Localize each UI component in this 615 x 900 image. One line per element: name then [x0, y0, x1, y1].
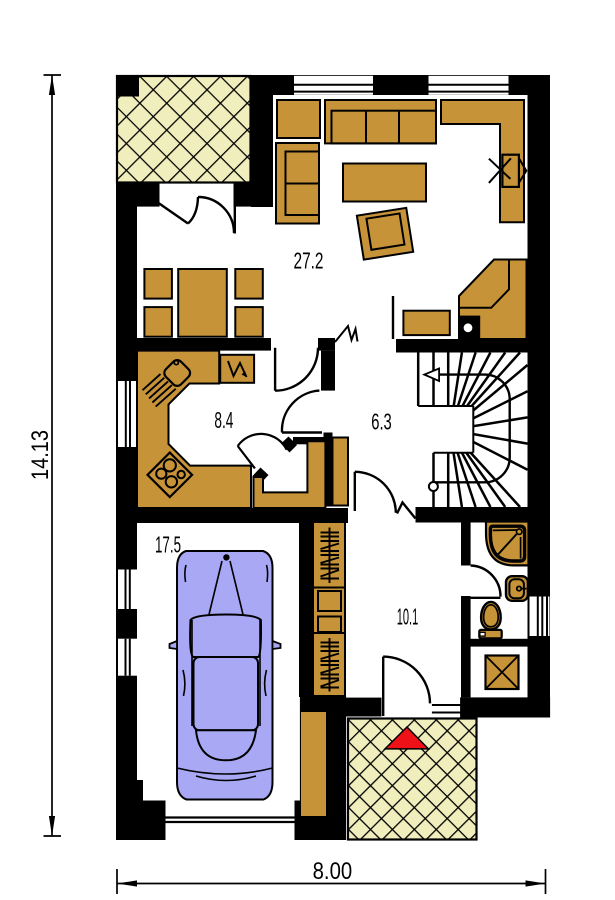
svg-text:8.4: 8.4: [214, 407, 233, 433]
svg-text:17.5: 17.5: [155, 531, 181, 557]
svg-text:27.2: 27.2: [294, 248, 324, 274]
svg-text:10.1: 10.1: [397, 604, 419, 630]
svg-text:8.00: 8.00: [313, 858, 353, 885]
svg-text:6.3: 6.3: [371, 408, 392, 434]
svg-text:14.13: 14.13: [27, 430, 54, 480]
